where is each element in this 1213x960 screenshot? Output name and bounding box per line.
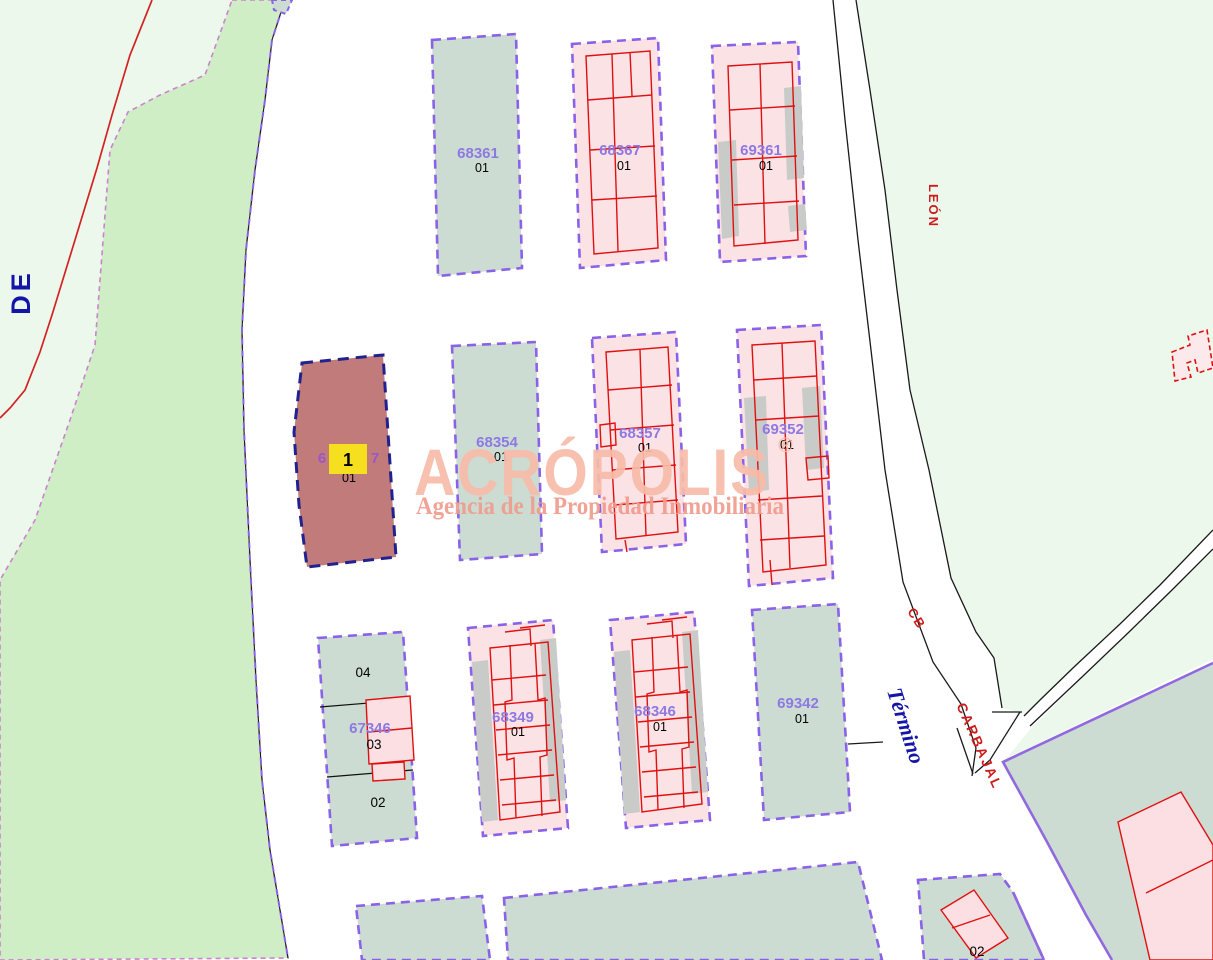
street-label-de: DE: [6, 269, 36, 315]
parcel-69361-sub: 01: [759, 159, 773, 173]
parcel-68346-ref: 68346: [634, 703, 676, 720]
cadastral-map-canvas[interactable]: 02 68361 01 68367 01 69361 01 6 7 01: [0, 0, 1213, 960]
parcel-69342[interactable]: 69342 01: [752, 604, 850, 820]
parcel-69342-ref: 69342: [777, 695, 819, 712]
parcel-69342-sub: 01: [795, 712, 809, 726]
parcel-bottom-a[interactable]: [356, 896, 490, 960]
parcel-68361-ref: 68361: [457, 145, 499, 162]
parcel-68361-sub: 01: [475, 161, 489, 175]
parcel-67346-ref: 67346: [349, 720, 391, 737]
parcel-68349-ref: 68349: [492, 709, 534, 726]
parcel-68346-sub: 01: [653, 720, 667, 734]
cadastral-map-viewport[interactable]: 02 68361 01 68367 01 69361 01 6 7 01: [0, 0, 1213, 960]
parcel-67346-sub04: 04: [355, 665, 371, 680]
parcel-selected-ref-right: 7: [371, 450, 379, 467]
watermark: ACRÓPOLIS ® Agencia de la Propiedad Inmo…: [414, 435, 793, 520]
watermark-registered-icon: ®: [778, 435, 793, 457]
parcel-68346[interactable]: 68346 01: [610, 612, 710, 828]
parcel-68361[interactable]: 68361 01: [432, 34, 522, 276]
parcel-69361[interactable]: 69361 01: [712, 42, 807, 262]
parcel-bottom-02-label: 02: [969, 944, 984, 959]
parcel-68367[interactable]: 68367 01: [572, 38, 666, 268]
street-label-leon: LEÓN: [926, 184, 941, 228]
parcel-selected[interactable]: 6 7 01 1: [294, 355, 396, 567]
parcel-68349-sub: 01: [511, 725, 525, 739]
parcel-67346[interactable]: 04 67346 03 02: [318, 632, 417, 846]
watermark-tagline: Agencia de la Propiedad Inmobiliaria: [416, 493, 784, 520]
selected-parcel-marker-label: 1: [343, 450, 353, 470]
parcel-67346-sub03: 03: [366, 737, 381, 752]
parcel-69361-ref: 69361: [740, 142, 782, 159]
parcel-67346-sub02: 02: [370, 795, 385, 810]
parcel-selected-ref-left: 6: [318, 450, 326, 467]
parcel-68367-ref: 68367: [599, 142, 641, 159]
parcel-68349[interactable]: 68349 01: [468, 620, 568, 836]
parcel-68367-sub: 01: [617, 159, 631, 173]
